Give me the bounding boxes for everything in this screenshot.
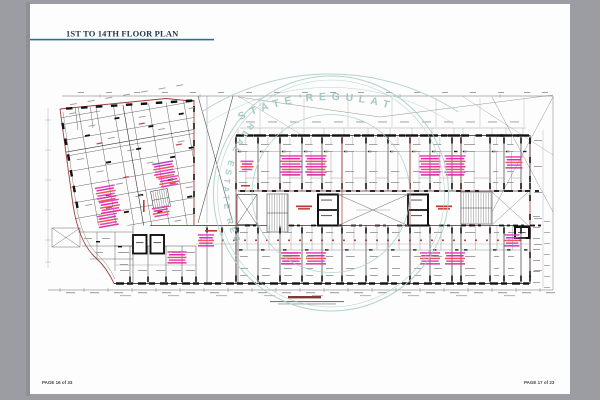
svg-text:PAGE 17 of 23: PAGE 17 of 23 — [524, 380, 555, 385]
svg-text:1ST TO 14TH FLOOR PLAN: 1ST TO 14TH FLOOR PLAN — [66, 29, 179, 39]
svg-text:PAGE 16 of 33: PAGE 16 of 33 — [42, 380, 73, 385]
